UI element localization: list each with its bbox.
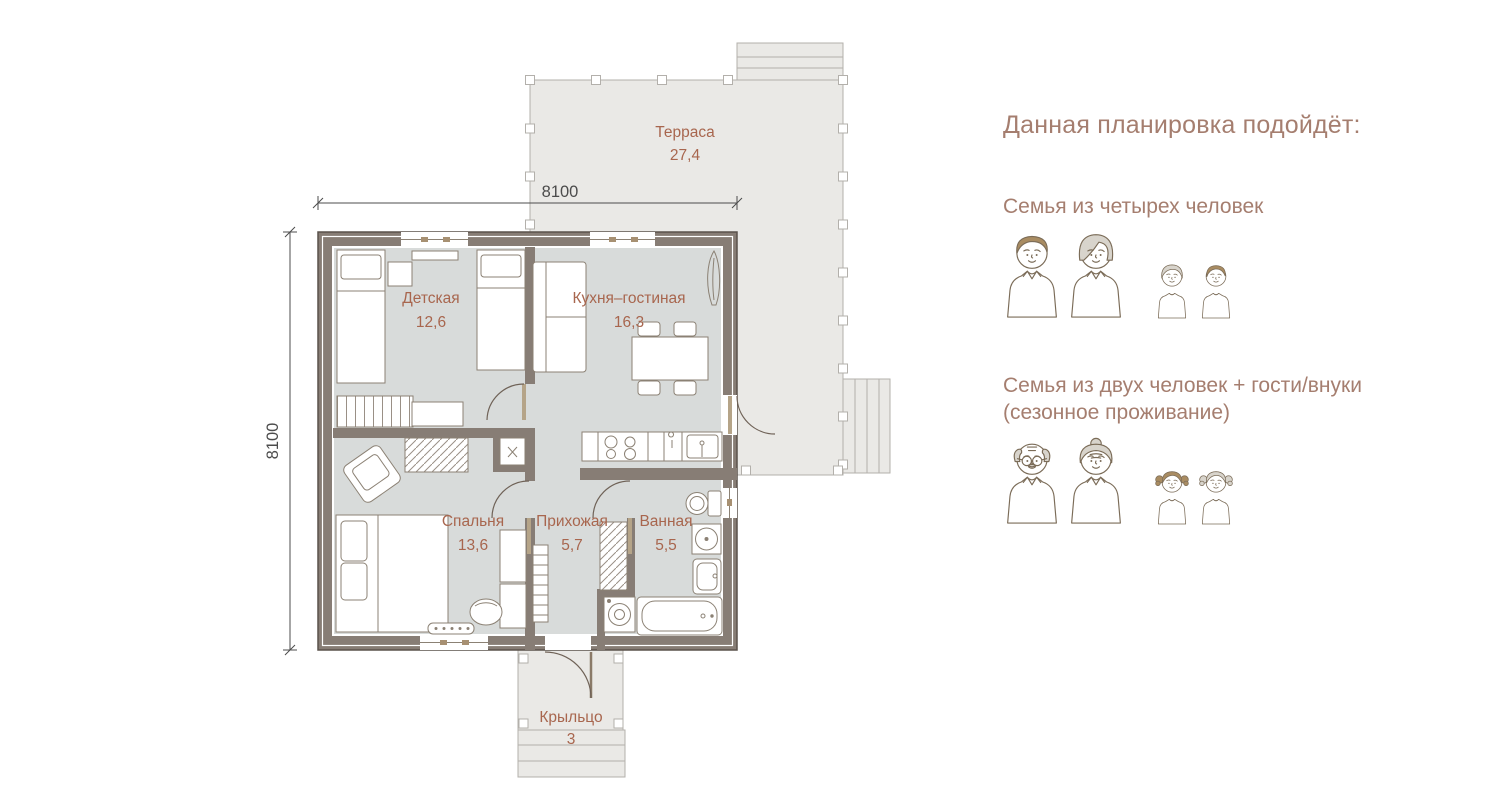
room-area-porch: 3 [567,731,576,748]
room-label-hallway: Прихожая [536,513,608,530]
room-area-hallway: 5,7 [561,537,583,554]
girl-short-icon [1153,261,1191,320]
dining-table [632,337,708,380]
person-icon-group [1003,230,1125,320]
sink-icon [687,435,718,458]
girl-pigtails-light-icon [1197,467,1235,526]
window-kids [401,232,468,247]
grandma-icon [1067,436,1125,526]
option-title: Семья из четырех человек [1003,193,1443,220]
option-subtitle: (сезонное проживание) [1003,399,1443,426]
porch-door-opening [545,635,591,650]
room-label-bathroom: Ванная [639,513,692,530]
person-icon-group [1153,467,1235,526]
bathtub-icon [637,597,722,635]
person-icon-group [1003,436,1125,526]
shelving [500,584,526,628]
room-area-terrace: 27,4 [670,147,701,164]
chair [674,322,696,336]
dimension-top-value: 8100 [542,183,579,201]
washbasin-icon [692,524,721,554]
washing-machine-icon [604,597,635,632]
utility-closet [500,438,525,465]
window-bedroom [420,635,488,650]
terrace-top-steps [737,43,843,80]
room-area-bedroom: 13,6 [458,537,488,554]
grandpa-icon [1003,436,1061,526]
dimension-left: 8100 [264,227,297,655]
girl-pigtails-dark-icon [1153,467,1191,526]
option-title: Семья из двух человек + гости/внуки [1003,372,1443,399]
audience-option-family-of-four: Семья из четырех человек [1003,193,1443,320]
window-kitchen [590,232,655,247]
shoe-rack [533,545,548,622]
room-label-bedroom: Спальня [442,513,504,530]
sideboard [412,402,463,426]
person-icon-group [1153,261,1235,320]
wall-shelf [412,251,458,260]
dimension-left-value: 8100 [264,423,282,460]
shower-sink-icon [693,559,721,594]
nightstand [388,262,412,286]
audience-panel: Данная планировка подойдёт: Семья из чет… [1003,111,1443,526]
page: 8100 8100 [0,0,1498,802]
audience-option-family-of-two: Семья из двух человек + гости/внуки (сез… [1003,372,1443,526]
family-of-four-icons [1003,228,1443,320]
woman-icon [1067,230,1125,320]
room-area-bathroom: 5,5 [655,537,677,554]
room-label-kids: Детская [402,290,459,307]
room-area-kids: 12,6 [416,314,446,331]
chair [638,381,660,395]
family-of-two-icons [1003,434,1443,526]
room-label-kitchen: Кухня–гостиная [572,290,685,307]
room-label-porch: Крыльцо [539,709,602,726]
panel-heading: Данная планировка подойдёт: [1003,111,1443,140]
window-bathroom [722,488,737,518]
man-icon [1003,230,1061,320]
boy-icon [1197,261,1235,320]
room-label-terrace: Терраса [655,124,715,141]
room-area-kitchen: 16,3 [614,314,644,331]
chair [674,381,696,395]
desk [500,530,526,582]
